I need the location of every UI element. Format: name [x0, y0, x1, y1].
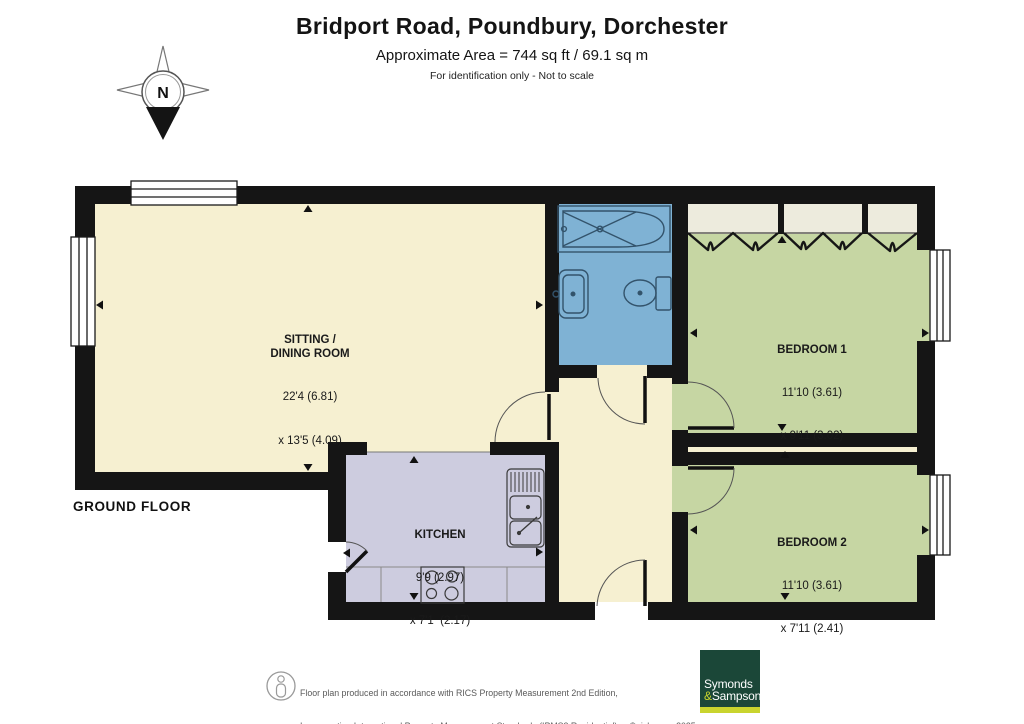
bedroom1-dim1: 11'10 (3.61): [712, 386, 912, 400]
bedroom2-label: BEDROOM 2 11'10 (3.61) x 7'11 (2.41): [712, 507, 912, 665]
bedroom1-name: BEDROOM 1: [712, 343, 912, 357]
logo-accent-strip: [700, 707, 760, 713]
bedroom1-label: BEDROOM 1 11'10 (3.61) x 9'11 (3.02): [712, 314, 912, 472]
disclaimer-line-1: Floor plan produced in accordance with R…: [300, 688, 720, 699]
wall-right-upper: [917, 186, 935, 250]
wall-bath-left: [545, 204, 559, 392]
compass-east-spike: [182, 84, 209, 97]
hallway-floor: [559, 365, 672, 602]
wall-kitchen-right: [545, 442, 559, 602]
kitchen-dim1: 9'9 (2.97): [340, 571, 540, 585]
sitting-room-name: SITTING / DINING ROOM: [210, 333, 410, 362]
bedroom2-dim2: x 7'11 (2.41): [712, 622, 912, 636]
wall-bath-bottom-left: [559, 365, 597, 378]
bedroom1-window-reveal: [917, 250, 930, 341]
sitting-room-dim1: 22'4 (6.81): [210, 390, 410, 404]
wall-bath-bottom-right: [647, 365, 672, 378]
wall-bedrooms-upper: [672, 204, 688, 384]
kitchen-name: KITCHEN: [340, 528, 540, 542]
identification-note: For identification only - Not to scale: [0, 70, 1024, 82]
bedroom2-window-reveal: [917, 475, 930, 555]
disclaimer-block: Floor plan produced in accordance with R…: [300, 666, 720, 724]
floorplan-page: N Bridport Road, Poundbury, Dorchester A…: [0, 0, 1024, 724]
bedroom1-door-opening: [672, 384, 688, 430]
sitting-room-dim2: x 13'5 (4.09): [210, 434, 410, 448]
sitting-door-opening: [545, 392, 559, 442]
wall-left-lower: [75, 346, 95, 490]
window-sitting-left: [71, 237, 95, 346]
kitchen-dim2: x 7'1 (2.17): [340, 614, 540, 628]
window-bedroom1-right: [930, 250, 950, 341]
bedroom2-door-opening: [672, 466, 688, 512]
page-title: Bridport Road, Poundbury, Dorchester: [0, 13, 1024, 40]
logo-ampersand: &: [704, 689, 712, 703]
bedroom2-dim1: 11'10 (3.61): [712, 579, 912, 593]
logo-text: Symonds &Sampson: [704, 679, 761, 702]
area-subtitle: Approximate Area = 744 sq ft / 69.1 sq m: [0, 47, 1024, 64]
entrance-door-opening: [595, 602, 648, 620]
compass-south-pointer: [146, 107, 180, 140]
wardrobe-bay-2: [784, 204, 862, 234]
logo-line2: &Sampson: [704, 691, 761, 703]
wall-kitchen-top-stub-right: [490, 442, 545, 455]
window-sitting-top: [131, 181, 237, 205]
compass-north-label: N: [157, 85, 169, 102]
bedroom1-dim2: x 9'11 (3.02): [712, 429, 912, 443]
wall-right-mid: [917, 341, 935, 475]
wall-bedrooms-lower: [672, 512, 688, 620]
wall-right-lower: [917, 555, 935, 620]
compass-west-spike: [117, 84, 144, 97]
symonds-sampson-logo: Symonds &Sampson: [700, 650, 760, 713]
bedroom2-name: BEDROOM 2: [712, 536, 912, 550]
wardrobe-bay-3: [868, 204, 917, 234]
wardrobe-stub-2: [862, 204, 868, 234]
window-bedroom2-right: [930, 475, 950, 555]
bathroom-floor: [559, 204, 672, 365]
wall-left-upper: [75, 186, 95, 237]
sitting-room-label: SITTING / DINING ROOM 22'4 (6.81) x 13'5…: [210, 304, 410, 477]
kitchen-label: KITCHEN 9'9 (2.97) x 7'1 (2.17): [340, 499, 540, 657]
wardrobe-bay-1: [688, 204, 778, 234]
wardrobe-stub-1: [778, 204, 784, 234]
floor-label: GROUND FLOOR: [73, 499, 191, 514]
certification-icon: [267, 672, 295, 700]
logo-word2: Sampson: [712, 689, 761, 703]
